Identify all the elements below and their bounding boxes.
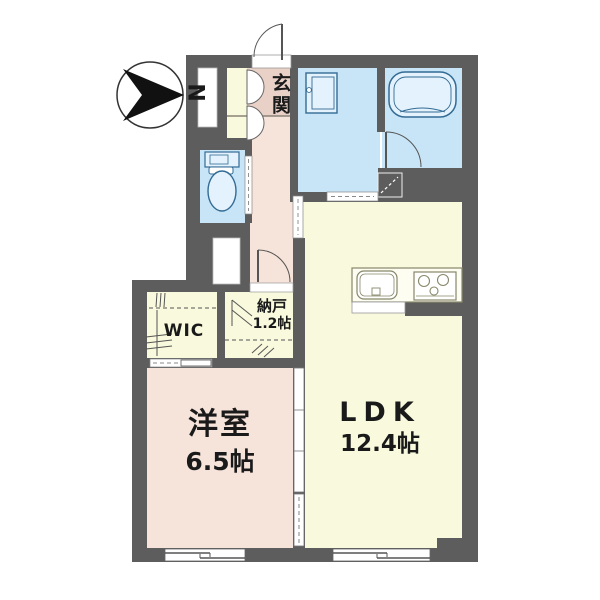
shoe-cabinet [225, 66, 247, 142]
ldk-size-label: 12.4帖 [300, 432, 460, 456]
genkan-label: 玄関 [268, 73, 292, 117]
wic-door-leaf [181, 360, 211, 366]
wall-kitchen-stub [405, 302, 478, 316]
vanity-unit [306, 73, 337, 113]
kitchen-counter-return [352, 302, 405, 313]
bathtub [389, 72, 456, 117]
bedroom-label: 洋室 [143, 409, 297, 441]
entrance-door-swing-arc [254, 24, 282, 57]
pipe-space-niche [213, 238, 240, 284]
pipe-space-hatched [378, 173, 402, 197]
wall-toilet-top [186, 138, 252, 150]
bedroom-window [165, 549, 245, 561]
storage-door-threshold [250, 283, 293, 292]
ldk-floor [294, 194, 466, 552]
kitchen-stove [414, 272, 456, 300]
storage-label: 納戸 [246, 299, 298, 315]
wall-storage-bottom [217, 358, 305, 368]
bedroom-size-label: 6.5帖 [143, 449, 297, 475]
kitchen-sink [357, 271, 397, 299]
floorplan: N 玄関 WIC 納戸 1.2帖 洋室 6.5帖 LDK 12.4帖 [0, 0, 600, 600]
toilet-door [245, 156, 252, 214]
toilet-fixture [205, 152, 239, 211]
ldk-window [333, 549, 430, 561]
north-arrow-icon [123, 69, 184, 121]
wic-label: WIC [147, 323, 221, 341]
entrance-threshold [252, 55, 291, 68]
wall-bottom-right-notch [437, 538, 478, 562]
wall-top [186, 55, 478, 68]
floorplan-drawing [0, 0, 600, 600]
compass [117, 62, 184, 128]
storage-size-label: 1.2帖 [244, 317, 300, 332]
wall-washroom-bathroom [377, 55, 385, 132]
ldk-label: LDK [300, 399, 460, 427]
north-label: N [183, 81, 206, 105]
